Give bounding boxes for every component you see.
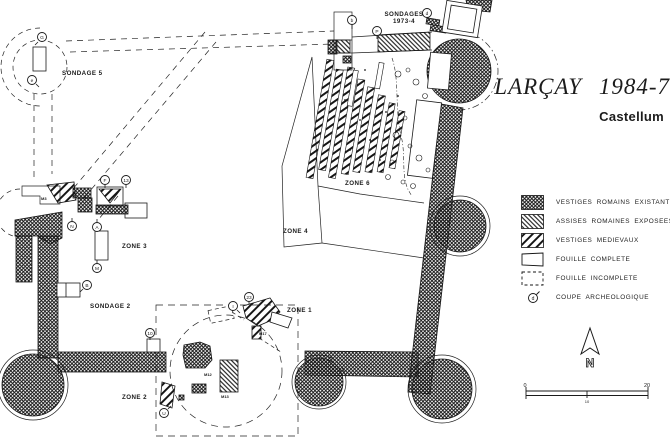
section-marker: 13: [122, 176, 131, 189]
section-marker: M: [93, 260, 102, 273]
section-marker: B: [80, 281, 92, 293]
label-m12: M12: [204, 372, 213, 377]
nw-tower-fouille: [33, 47, 46, 71]
sw-corner-tower: [2, 354, 64, 416]
sondage2-fouille: [57, 283, 80, 297]
label-m3: M3: [41, 196, 47, 201]
svg-text:I: I: [232, 304, 233, 310]
label-zone3: ZONE 3: [122, 243, 147, 250]
section-marker: e: [28, 76, 40, 88]
scale-start: 0: [523, 383, 526, 389]
section-marker: A: [93, 219, 102, 232]
east-interval-tower: [434, 200, 486, 252]
dashed-square-swatch: [521, 271, 544, 286]
trench-assises: [336, 40, 350, 53]
masonry-fills: [2, 0, 492, 419]
scale-bar: 0 10 20: [523, 383, 650, 404]
north-arrow-label: N: [586, 356, 595, 370]
legend: VESTIGES ROMAINS EXISTANTS ASSISES ROMAI…: [521, 195, 669, 309]
legend-row-fouille-incomplete: FOUILLE INCOMPLETE: [521, 271, 669, 286]
label-m17: M17: [259, 331, 268, 336]
title-block: LARÇAY 1984-7 Castellum: [492, 74, 670, 124]
west-wall: [38, 236, 58, 358]
label-sondage2: SONDAGE 2: [90, 303, 131, 310]
svg-text:G: G: [40, 35, 44, 41]
roman-crosshatch-swatch: [521, 195, 544, 210]
scale-mid: 10: [585, 399, 590, 404]
svg-text:d: d: [426, 11, 429, 17]
coupe-symbol-icon: d: [521, 290, 544, 305]
label-zone6: ZONE 6: [345, 180, 370, 187]
slash-hatch-swatch: [521, 233, 544, 248]
north-arrow-icon: [581, 328, 599, 354]
svg-text:U: U: [162, 411, 166, 417]
zone1-roman-structure: [183, 342, 212, 368]
south-wall-east: [305, 351, 418, 377]
ne-fouille-outer: [442, 0, 483, 37]
zone2-fouille: [147, 339, 160, 352]
zone1-assises-structure: [220, 360, 238, 392]
backslash-hatch-swatch: [521, 214, 544, 229]
scale-end: 20: [644, 383, 650, 389]
page-subtitle: Castellum: [492, 109, 670, 124]
section-marker: N: [68, 218, 77, 231]
legend-label: VESTIGES ROMAINS EXISTANTS: [556, 199, 670, 206]
legend-label: ASSISES ROMAINES EXPOSEES: [556, 218, 670, 225]
excavation-squares: [33, 0, 482, 352]
svg-text:M: M: [95, 266, 99, 272]
section-marker: U: [160, 406, 172, 418]
label-sondage5: SONDAGE 5: [62, 70, 103, 77]
legend-label: VESTIGES MEDIEVAUX: [556, 237, 639, 244]
west-wall-outer-strip: [16, 236, 32, 282]
section-marker: I: [229, 302, 241, 314]
label-zone1: ZONE 1: [287, 307, 312, 314]
label-zone4: ZONE 4: [283, 228, 308, 235]
svg-text:P: P: [375, 29, 378, 35]
svg-text:F: F: [104, 178, 107, 184]
section-marker: 23: [245, 293, 254, 305]
solid-square-swatch: [521, 252, 544, 267]
label-m13: M13: [221, 394, 230, 399]
label-sondages-1973-years: 1973-4: [393, 18, 415, 25]
svg-text:13: 13: [123, 178, 129, 184]
zone3-fouille-c: [95, 231, 108, 260]
legend-row-coupe: d COUPE ARCHEOLOGIQUE: [521, 290, 669, 305]
svg-text:e: e: [31, 79, 34, 84]
section-marker: b: [348, 16, 357, 30]
legend-row-fouille-complete: FOUILLE COMPLETE: [521, 252, 669, 267]
zone6-bottom-line: [318, 186, 424, 203]
legend-row-medieval: VESTIGES MEDIEVAUX: [521, 233, 669, 248]
svg-text:23: 23: [246, 295, 252, 301]
svg-text:d: d: [532, 296, 535, 302]
north-arrow: N: [581, 328, 599, 370]
svg-text:N: N: [70, 224, 74, 230]
legend-label: FOUILLE INCOMPLETE: [556, 275, 638, 282]
legend-label: COUPE ARCHEOLOGIQUE: [556, 294, 649, 301]
ne-tower-fouille: [427, 52, 451, 90]
archaeological-site-plan: G e b P d F 13 A N M B 10 23 I U SONDAGE…: [0, 0, 670, 444]
legend-row-roman: VESTIGES ROMAINS EXISTANTS: [521, 195, 669, 210]
legend-row-assises: ASSISES ROMAINES EXPOSEES: [521, 214, 669, 229]
legend-label: FOUILLE COMPLETE: [556, 256, 630, 263]
svg-text:B: B: [85, 283, 88, 289]
svg-text:10: 10: [147, 331, 153, 337]
label-sondages-1973: SONDAGES: [384, 11, 423, 18]
west-gate-medieval: [47, 182, 76, 203]
zone6-medieval-strips: [306, 53, 413, 192]
north-wall-assises: [378, 32, 430, 52]
section-marker: F: [101, 176, 110, 189]
label-zone2: ZONE 2: [122, 394, 147, 401]
zone1-medieval-arm: [270, 312, 292, 328]
section-marker: 10: [146, 329, 155, 341]
section-marker: G: [35, 33, 47, 46]
page-title: LARÇAY 1984-7: [492, 74, 670, 100]
svg-text:b: b: [351, 18, 354, 24]
zone2-medieval-piece: [160, 382, 175, 408]
south-wall-west: [58, 352, 166, 372]
